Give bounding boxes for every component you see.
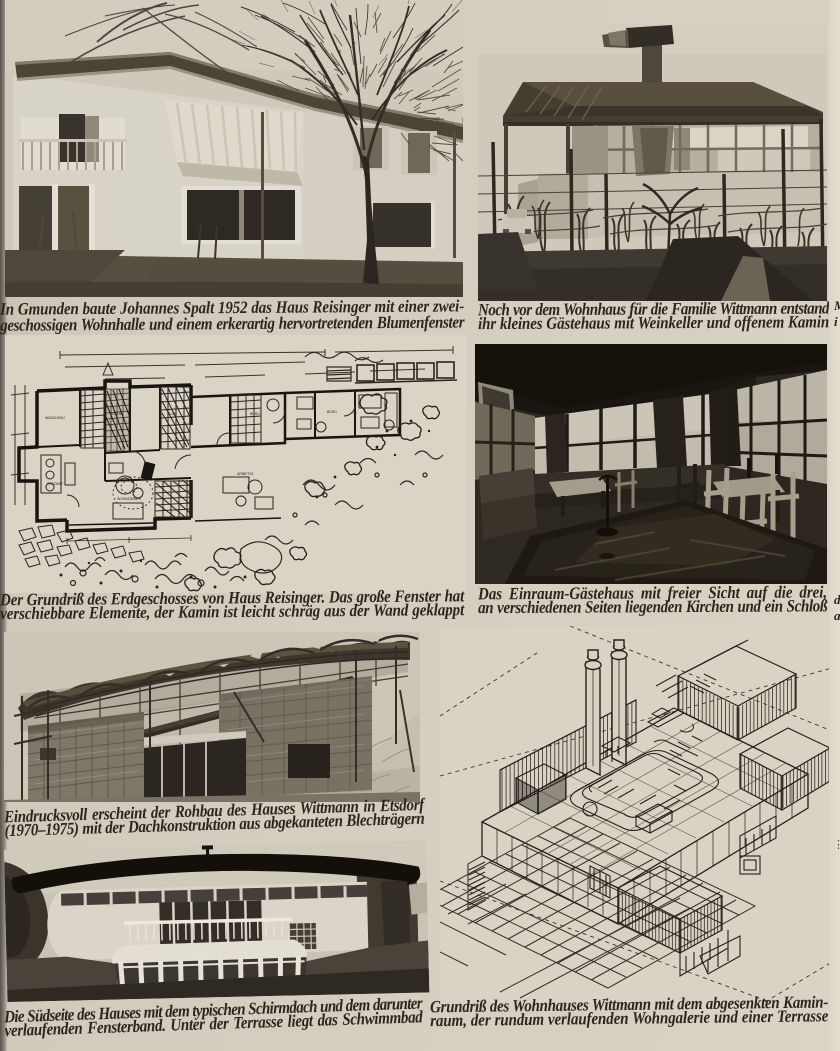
svg-text:WÄSCHEKÜ: WÄSCHEKÜ xyxy=(45,416,65,420)
svg-text:BÜRO: BÜRO xyxy=(250,412,260,416)
svg-text:ARBEITSZ: ARBEITSZ xyxy=(237,472,254,476)
svg-text:BÜRO: BÜRO xyxy=(327,410,337,414)
